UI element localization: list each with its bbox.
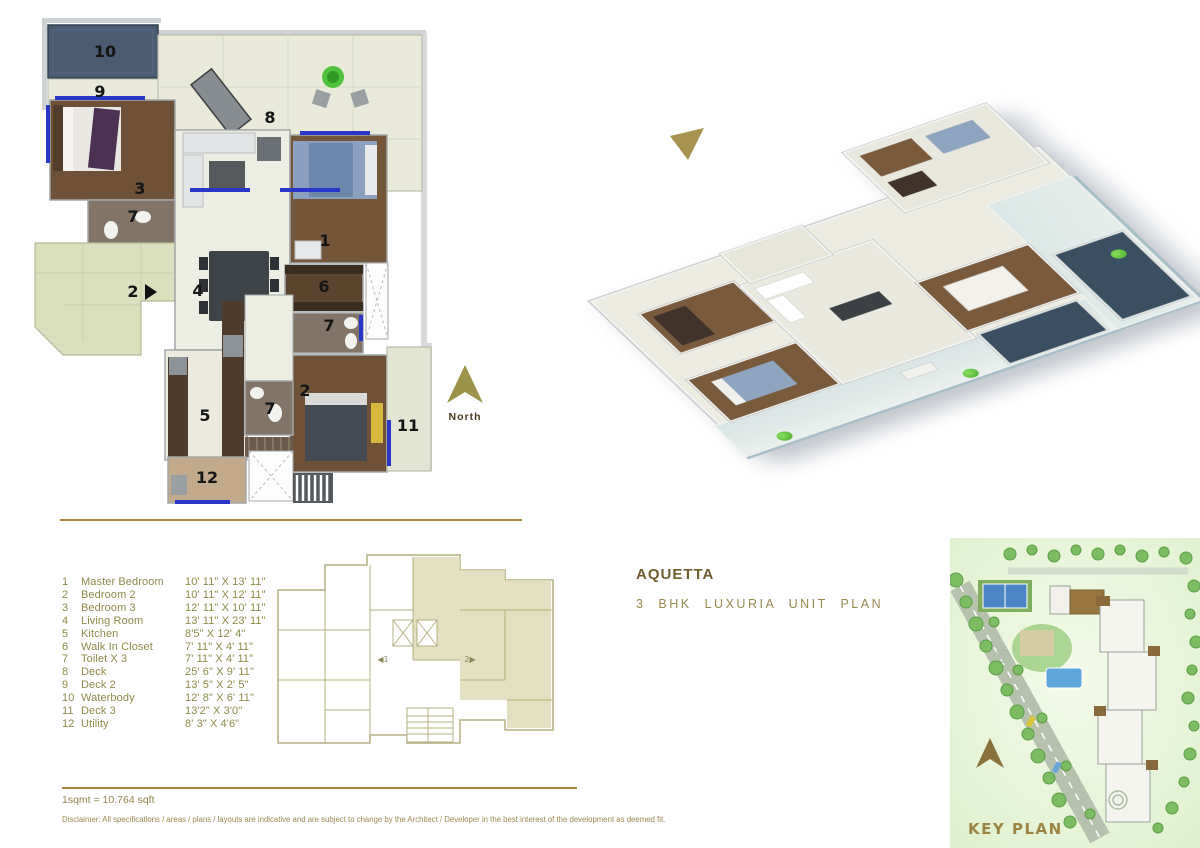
- bedroom3-bed: [53, 105, 121, 171]
- legend-dim: 8'5" X 12' 4": [185, 628, 266, 641]
- legend-name: Waterbody: [81, 692, 185, 705]
- elevator: [249, 451, 293, 501]
- key-plan-map: KEY PLAN: [950, 538, 1200, 848]
- project-title: AQUETTA: [636, 566, 714, 583]
- legend-dim: 10' 11" X 13' 11": [185, 576, 266, 589]
- north-arrow-icon: [442, 365, 488, 405]
- brochure-page: 10 9 8 3 7 1 2 4 6 7 2 11 5 7 12: [0, 0, 1200, 848]
- legend-name: Living Room: [81, 615, 185, 628]
- legend-num: 4: [62, 615, 81, 628]
- legend-num: 9: [62, 679, 81, 692]
- room-label: 4: [192, 281, 203, 300]
- legend-name: Deck 2: [81, 679, 185, 692]
- room-label: 9: [94, 82, 105, 101]
- legend-name: Deck: [81, 666, 185, 679]
- room-label: 2: [299, 381, 310, 400]
- 3d-unit-render: [600, 18, 1200, 500]
- 2d-floor-plan: 10 9 8 3 7 1 2 4 6 7 2 11 5 7 12: [33, 5, 433, 505]
- legend-name: Bedroom 2: [81, 589, 185, 602]
- north-label: North: [434, 411, 496, 423]
- legend-name: Toilet X 3: [81, 653, 185, 666]
- unit-plan-subtitle: 3 BHK LUXURIA UNIT PLAN: [636, 597, 883, 611]
- legend-name: Deck 3: [81, 705, 185, 718]
- legend-num: 1: [62, 576, 81, 589]
- legend-num: 7: [62, 653, 81, 666]
- amenity-deck: [1020, 630, 1054, 656]
- passage-floor: [245, 295, 293, 381]
- legend-dim: 13'2" X 3'0": [185, 705, 266, 718]
- room-label: 7: [264, 399, 275, 418]
- legend-dim: 7' 11" X 4' 11": [185, 641, 266, 654]
- legend-dim: 25' 6" X 9' 11": [185, 666, 266, 679]
- room-label: 7: [323, 316, 334, 335]
- room-label: 5: [199, 406, 210, 425]
- room-legend: 1Master Bedroom10' 11" X 13' 11" 2Bedroo…: [62, 576, 266, 731]
- legend-name: Walk In Closet: [81, 641, 185, 654]
- legend-name: Kitchen: [81, 628, 185, 641]
- room-label: 8: [264, 108, 275, 127]
- legend-dim: 13' 11" X 23' 11": [185, 615, 266, 628]
- divider-line: [60, 519, 522, 521]
- clubhouse: [1050, 586, 1104, 614]
- conversion-note: 1sqmt = 10.764 sqft: [62, 794, 155, 806]
- legend-name: Master Bedroom: [81, 576, 185, 589]
- disclaimer-text: Disclaimer: All specifications / areas /…: [62, 815, 665, 824]
- site-pool: [1046, 668, 1082, 688]
- legend-num: 5: [62, 628, 81, 641]
- room-label: 10: [94, 42, 116, 61]
- legend-num: 10: [62, 692, 81, 705]
- legend-num: 8: [62, 666, 81, 679]
- floor-key-plan: ◀1 2▶: [265, 550, 585, 782]
- legend-num: 11: [62, 705, 81, 718]
- room-label: 6: [318, 277, 329, 296]
- room-label: 1: [319, 231, 330, 250]
- kitchen-counter: [222, 301, 244, 459]
- unit2-entry-marker: 2▶: [464, 655, 476, 664]
- shaft: [366, 263, 388, 339]
- legend-dim: 8' 3" X 4'6": [185, 718, 266, 731]
- legend-name: Utility: [81, 718, 185, 731]
- legend-dim: 10' 11" X 12' 11": [185, 589, 266, 602]
- bench: [295, 241, 321, 259]
- room-label: 12: [196, 468, 218, 487]
- room-label: 2: [127, 282, 138, 301]
- toilet-wc: [104, 221, 118, 239]
- room-label: 11: [397, 416, 419, 435]
- legend-num: 3: [62, 602, 81, 615]
- unit1-entry-marker: ◀1: [377, 655, 388, 664]
- legend-num: 2: [62, 589, 81, 602]
- 3d-direction-arrow-icon: [668, 128, 708, 164]
- 3d-floor-slab: [592, 148, 1197, 454]
- north-indicator: North: [434, 365, 496, 423]
- legend-dim: 13' 5" X 2' 5": [185, 679, 266, 692]
- legend-dim: 12' 11" X 10' 11": [185, 602, 266, 615]
- entry-deck-floor: [35, 243, 175, 355]
- legend-dim: 7' 11" X 4' 11": [185, 653, 266, 666]
- tennis-court: [978, 580, 1032, 612]
- legend-dim: 12' 8" X 6' 11": [185, 692, 266, 705]
- stair-hatch: [293, 473, 333, 503]
- key-plan-label: KEY PLAN: [968, 820, 1063, 838]
- room-label: 7: [127, 207, 138, 226]
- deck3-floor: [387, 347, 431, 471]
- legend-num: 12: [62, 718, 81, 731]
- washer: [171, 475, 187, 495]
- room-label: 3: [134, 179, 145, 198]
- legend-name: Bedroom 3: [81, 602, 185, 615]
- legend-num: 6: [62, 641, 81, 654]
- divider-line: [62, 787, 577, 789]
